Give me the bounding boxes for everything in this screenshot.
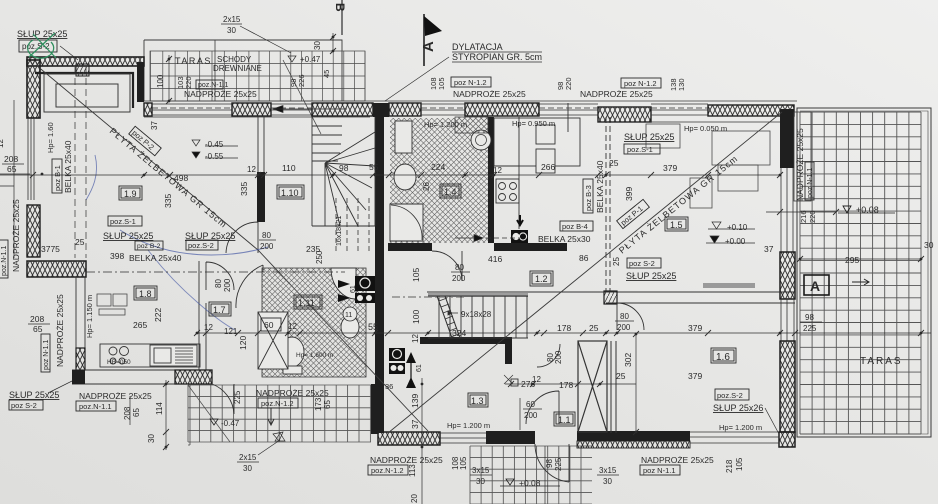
svg-text:324: 324 [452, 328, 466, 338]
svg-text:poz.S-2: poz.S-2 [717, 391, 743, 400]
svg-text:1.2: 1.2 [535, 274, 548, 284]
svg-text:BELKA 25x40: BELKA 25x40 [595, 160, 605, 213]
svg-text:DREWNIANE: DREWNIANE [213, 64, 262, 73]
svg-text:poz.S-1: poz.S-1 [110, 217, 136, 226]
svg-text:250: 250 [315, 250, 324, 264]
svg-text:NADPROŻE 25x25: NADPROŻE 25x25 [184, 89, 257, 99]
svg-text:105: 105 [411, 268, 421, 282]
svg-text:98: 98 [339, 163, 349, 173]
svg-text:STYROPIAN GR. 5cm: STYROPIAN GR. 5cm [452, 52, 542, 62]
svg-text:poz N-1.2: poz N-1.2 [454, 78, 487, 87]
svg-text:BELKA 25x30: BELKA 25x30 [538, 234, 591, 244]
svg-text:poz B-3: poz B-3 [584, 185, 593, 211]
svg-text:379: 379 [688, 323, 702, 333]
svg-text:222: 222 [153, 308, 163, 322]
svg-text:NADPROŻE 25x25: NADPROŻE 25x25 [795, 128, 805, 201]
svg-text:12: 12 [411, 334, 420, 343]
svg-text:25: 25 [75, 237, 85, 247]
svg-text:poz.N-1.2: poz.N-1.2 [371, 466, 404, 475]
svg-text:100: 100 [411, 310, 421, 324]
svg-text:45: 45 [322, 70, 331, 78]
svg-text:NADPROŻE 25x25: NADPROŻE 25x25 [580, 89, 653, 99]
svg-text:65: 65 [33, 324, 43, 334]
svg-text:266: 266 [541, 162, 555, 172]
svg-text:113: 113 [408, 464, 417, 477]
svg-text:98: 98 [545, 459, 554, 468]
svg-text:SŁUP 25x25: SŁUP 25x25 [185, 231, 235, 241]
svg-text:+0.10: +0.10 [727, 223, 748, 232]
svg-text:178: 178 [557, 323, 571, 333]
svg-text:12: 12 [532, 375, 541, 384]
svg-text:1.8: 1.8 [139, 289, 152, 299]
svg-text:120: 120 [238, 336, 248, 350]
svg-text:200: 200 [524, 411, 538, 420]
svg-text:9x18x28: 9x18x28 [461, 310, 492, 319]
svg-text:208: 208 [123, 406, 132, 420]
svg-text:65: 65 [323, 400, 332, 409]
svg-text:+0.00: +0.00 [725, 237, 746, 246]
svg-text:1.9: 1.9 [124, 189, 137, 199]
svg-text:61: 61 [350, 285, 357, 293]
svg-text:NADPROŻE 25x25: NADPROŻE 25x25 [256, 388, 329, 398]
svg-text:30: 30 [147, 434, 156, 443]
svg-text:105: 105 [735, 457, 744, 471]
svg-text:poz B-1: poz B-1 [53, 165, 62, 191]
svg-text:200: 200 [617, 323, 631, 332]
svg-text:139: 139 [410, 394, 420, 408]
svg-text:SŁUP 25x25: SŁUP 25x25 [624, 132, 674, 142]
svg-text:30: 30 [924, 240, 934, 250]
svg-text:30: 30 [313, 41, 322, 50]
svg-text:498: 498 [174, 173, 188, 183]
svg-text:55: 55 [368, 322, 378, 332]
svg-text:2x15: 2x15 [223, 15, 241, 24]
svg-text:86: 86 [579, 253, 589, 263]
svg-text:12: 12 [288, 322, 297, 331]
svg-text:12: 12 [247, 165, 256, 174]
svg-text:30: 30 [227, 26, 236, 35]
svg-text:37: 37 [764, 244, 774, 254]
svg-text:3x15: 3x15 [472, 466, 490, 475]
svg-text:Hp= 1.150 m: Hp= 1.150 m [85, 295, 94, 338]
svg-text:200: 200 [223, 278, 232, 292]
svg-text:200: 200 [452, 274, 466, 283]
svg-text:225: 225 [554, 457, 563, 471]
svg-text:poz S-2: poz S-2 [11, 401, 37, 410]
svg-text:65: 65 [132, 408, 141, 417]
svg-text:225: 225 [803, 324, 817, 333]
svg-text:NADPROŻE 25x25: NADPROŻE 25x25 [55, 294, 65, 367]
svg-text:SŁUP 25x25: SŁUP 25x25 [17, 29, 67, 39]
svg-text:poz B-2: poz B-2 [137, 243, 161, 250]
svg-text:37: 37 [150, 121, 159, 130]
svg-text:1.10: 1.10 [281, 188, 299, 198]
svg-text:25: 25 [609, 158, 619, 168]
svg-text:105: 105 [437, 77, 446, 90]
svg-text:114: 114 [155, 402, 164, 415]
svg-text:208: 208 [4, 154, 18, 164]
svg-text:226: 226 [297, 74, 306, 87]
svg-text:SŁUP 25x25: SŁUP 25x25 [103, 231, 153, 241]
svg-text:poz N-1.2: poz N-1.2 [624, 79, 657, 88]
svg-text:295: 295 [845, 255, 859, 265]
svg-text:poz.N-1.1: poz.N-1.1 [1, 246, 8, 276]
svg-text:NADPROŻE 25x25: NADPROŻE 25x25 [11, 199, 21, 272]
svg-text:+0.08: +0.08 [856, 205, 879, 215]
svg-text:BELKA 25x40: BELKA 25x40 [63, 140, 73, 193]
svg-text:SŁUP 25x25: SŁUP 25x25 [9, 390, 59, 400]
svg-text:60: 60 [526, 400, 535, 409]
svg-text:Hp= 1.600 m: Hp= 1.600 m [296, 352, 333, 359]
svg-text:Hp= 0.950 m: Hp= 0.950 m [512, 119, 555, 128]
svg-text:121: 121 [224, 327, 238, 336]
svg-text:216: 216 [799, 210, 808, 223]
svg-text:379: 379 [688, 371, 702, 381]
svg-text:1.11: 1.11 [298, 298, 315, 308]
svg-text:Hp= 0.050 m: Hp= 0.050 m [684, 124, 727, 133]
svg-text:220: 220 [808, 210, 817, 223]
svg-text:110: 110 [282, 163, 296, 173]
svg-text:poz S-2: poz S-2 [629, 259, 655, 268]
svg-text:TARAS: TARAS [860, 356, 903, 367]
svg-text:poz N-1.1: poz N-1.1 [643, 466, 676, 475]
svg-text:poz.N-1.2: poz.N-1.2 [261, 399, 294, 408]
svg-text:11: 11 [345, 312, 352, 319]
svg-text:1.4: 1.4 [444, 187, 457, 197]
svg-text:200: 200 [554, 350, 563, 364]
svg-text:poz B-4: poz B-4 [562, 222, 588, 231]
svg-text:2x15: 2x15 [239, 453, 257, 462]
svg-text:-0.55: -0.55 [205, 152, 224, 161]
svg-text:25: 25 [612, 257, 621, 266]
svg-text:BELKA 25x40: BELKA 25x40 [129, 253, 182, 263]
svg-text:A: A [810, 278, 820, 294]
svg-text:61: 61 [416, 364, 423, 372]
svg-text:379: 379 [663, 163, 677, 173]
svg-text:224: 224 [431, 162, 445, 172]
svg-text:SŁUP 25x25: SŁUP 25x25 [626, 271, 676, 281]
svg-text:SŁUP 25x26: SŁUP 25x26 [713, 403, 763, 413]
svg-text:65: 65 [7, 164, 17, 174]
svg-text:1.7: 1.7 [213, 305, 226, 315]
svg-text:60: 60 [264, 320, 274, 330]
svg-text:36: 36 [385, 382, 393, 391]
svg-text:Hp= 1.200 m: Hp= 1.200 m [424, 120, 467, 129]
svg-text:Hp= 1.200 m: Hp= 1.200 m [719, 423, 762, 432]
svg-text:218: 218 [725, 459, 734, 473]
svg-text:3775: 3775 [41, 244, 60, 254]
svg-text:12: 12 [0, 139, 5, 148]
svg-text:poz.S-1: poz.S-1 [627, 145, 653, 154]
svg-text:208: 208 [30, 314, 44, 324]
svg-text:1.3: 1.3 [471, 396, 484, 406]
svg-text:Hp= 1.60: Hp= 1.60 [46, 122, 55, 153]
svg-text:80: 80 [455, 263, 464, 272]
svg-text:NADPROŻE 25x25: NADPROŻE 25x25 [79, 391, 152, 401]
svg-text:3x15: 3x15 [599, 466, 617, 475]
svg-text:200: 200 [260, 242, 274, 251]
svg-text:173: 173 [314, 397, 323, 411]
svg-text:25: 25 [589, 323, 599, 333]
svg-text:30: 30 [243, 464, 252, 473]
svg-text:Hp= 1.200 m: Hp= 1.200 m [447, 421, 490, 430]
svg-text:B: B [333, 3, 347, 12]
svg-text:20: 20 [410, 494, 419, 503]
svg-text:265: 265 [133, 320, 147, 330]
svg-text:NADPROŻE 25x25: NADPROŻE 25x25 [453, 89, 526, 99]
svg-text:12: 12 [493, 166, 502, 175]
svg-text:105: 105 [459, 456, 468, 470]
svg-text:37: 37 [410, 419, 420, 429]
svg-text:26: 26 [422, 182, 431, 191]
svg-text:30: 30 [476, 477, 485, 486]
svg-text:80: 80 [620, 312, 629, 321]
svg-text:12: 12 [204, 323, 213, 332]
svg-text:+0.08: +0.08 [519, 478, 541, 488]
svg-text:1.5: 1.5 [670, 220, 683, 230]
svg-text:30: 30 [603, 477, 612, 486]
svg-text:225: 225 [233, 390, 242, 404]
svg-text:80: 80 [214, 279, 223, 288]
svg-text:-0.47: -0.47 [221, 419, 240, 428]
svg-text:25: 25 [616, 371, 626, 381]
svg-text:130: 130 [677, 78, 686, 91]
svg-text:poz.N-1.1: poz.N-1.1 [198, 82, 228, 89]
svg-text:55: 55 [369, 162, 379, 172]
svg-text:-0.45: -0.45 [205, 140, 224, 149]
svg-text:98: 98 [805, 313, 814, 322]
svg-text:NADPROŻE 25x25: NADPROŻE 25x25 [641, 455, 714, 465]
svg-text:A: A [420, 41, 437, 52]
svg-text:335: 335 [239, 182, 249, 196]
svg-text:poz.N-1.1: poz.N-1.1 [79, 402, 112, 411]
svg-text:399: 399 [624, 187, 634, 201]
svg-text:220: 220 [564, 77, 573, 90]
svg-text:poz.S-2: poz.S-2 [188, 241, 214, 250]
svg-text:416: 416 [488, 254, 502, 264]
svg-text:220: 220 [184, 76, 193, 89]
svg-text:DYLATACJA: DYLATACJA [452, 42, 503, 52]
svg-text:TARAS: TARAS [175, 56, 212, 66]
svg-text:SCHODY: SCHODY [217, 55, 252, 64]
svg-text:poz N-1.1: poz N-1.1 [43, 340, 50, 370]
svg-text:1.6: 1.6 [716, 352, 730, 363]
svg-text:398: 398 [110, 251, 124, 261]
svg-text:178: 178 [559, 380, 573, 390]
svg-text:335: 335 [163, 194, 173, 208]
svg-text:16x18x21: 16x18x21 [336, 216, 343, 246]
svg-text:poz N-1.1: poz N-1.1 [807, 168, 814, 198]
svg-text:+0.47: +0.47 [300, 55, 321, 64]
svg-text:100: 100 [156, 74, 165, 88]
svg-text:302: 302 [623, 353, 633, 367]
svg-text:NADPROŻE 25x25: NADPROŻE 25x25 [370, 455, 443, 465]
svg-text:1.1: 1.1 [558, 415, 571, 425]
svg-text:HB=050: HB=050 [107, 359, 131, 366]
svg-text:80: 80 [262, 231, 271, 240]
